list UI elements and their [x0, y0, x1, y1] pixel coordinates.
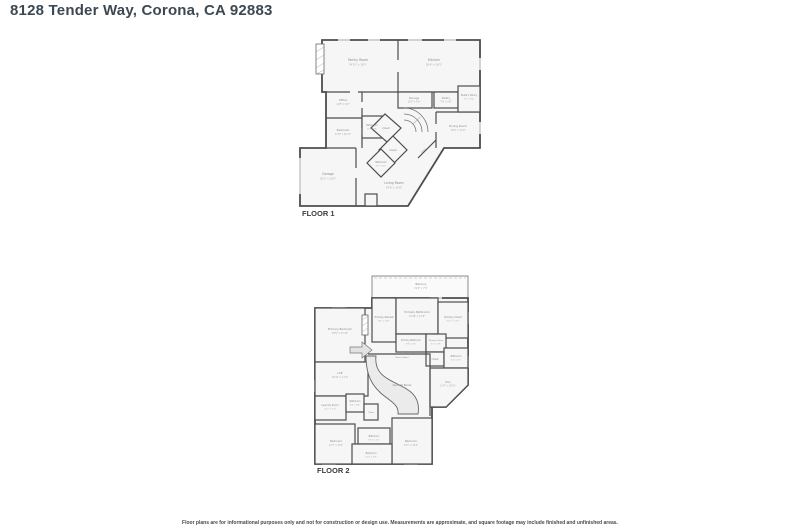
room-label: Office [339, 98, 347, 102]
room-label: Bedroom [330, 439, 342, 443]
room-label: Bathroom [366, 124, 378, 127]
room-label: Primary Bedroom [328, 327, 353, 331]
room-label: Closet [432, 358, 439, 361]
room-dims-label: 6'8" x 6'4" [350, 405, 361, 407]
floor-1-caption: FLOOR 1 [302, 209, 335, 218]
room-label: Bedroom [337, 128, 350, 132]
room-dims-label: 6'2" x 5'8" [431, 344, 441, 346]
closet-nook [365, 194, 377, 206]
room-dims-label: 9'8" x 5'4" [406, 344, 417, 346]
room-dims-label: 14'6" x 11'9" [451, 129, 466, 132]
room-label: Bedroom [366, 452, 377, 455]
floor-1-plan: Family Room 24'10" x 16'5" Kitchen 26'4"… [300, 40, 480, 218]
room-dims-label: 18'5" x 17'10" [332, 332, 348, 335]
floor-2-caption: FLOOR 2 [317, 466, 350, 475]
room-dims-label: 11'8" x 9'2" [336, 103, 350, 106]
room-label: Bathroom [350, 400, 361, 403]
room-dims-label: 7'2" x 8'4" [464, 99, 475, 101]
room-dims-label: 13'10" x 11'6" [409, 315, 425, 318]
room-label: Closet [389, 149, 396, 152]
room-dims-label: 12'3" x 9'8" [365, 457, 377, 459]
room-dims-label: 16'11" x 11'2" [332, 376, 348, 379]
room-label: Garage [322, 172, 334, 176]
floor-plans-canvas: Family Room 24'10" x 16'5" Kitchen 26'4"… [0, 0, 800, 530]
footer-disclaimer: Floor plans are for informational purpos… [0, 520, 800, 526]
room-dims-label: 9'10" x 5'2" [368, 440, 380, 442]
den-room [430, 368, 468, 407]
room-dims-label: 7'4" x 6'0" [451, 360, 462, 362]
room-label: Family Room [348, 58, 368, 62]
room-label: Primary Closet [429, 339, 444, 342]
room-label: Stairs (down) [395, 356, 409, 359]
floor-plan-page: 8128 Tender Way, Corona, CA 92883 Family… [0, 0, 800, 530]
room-dims-label: 8'0" x 13'6" [378, 321, 390, 323]
room-label: Butler's Pantry [461, 94, 478, 97]
room-label: Pantry [442, 96, 451, 100]
room-label: Dining Room [449, 124, 467, 128]
room-label: Den [445, 380, 451, 384]
room-dims-label: 31'0" x 7'4" [414, 287, 428, 290]
room-dims-label: 13'1" x 14'2" [404, 444, 418, 447]
room-dims-label: 24'6" x 15'8" [386, 186, 402, 190]
room-dims-label: 10'2" x 7'3" [324, 409, 336, 411]
room-dims-label: 26'4" x 16'5" [426, 63, 442, 67]
floor-2-plan: Balcony 31'0" x 7'4" Primary Bathroom 13… [315, 276, 468, 475]
room-label: Storage [409, 96, 420, 100]
bathroom-room [346, 394, 364, 412]
room-dims-label: 6'9" x 6'2" [376, 166, 387, 168]
room-label: Primary Retreat [375, 316, 394, 319]
room-label: Primary Closet [444, 316, 462, 319]
room-label: Living Room [384, 181, 404, 185]
room-dims-label: 11'8" x 10'11" [335, 133, 351, 136]
room-label: Bathroom [451, 355, 462, 358]
room-label: Open To Below [392, 383, 412, 387]
room-label: Loft [337, 371, 343, 375]
room-dims-label: 18'2" x 19'0" [320, 177, 336, 181]
room-dims-label: 9'11" x 11'5" [446, 321, 459, 323]
room-label: Closet [382, 127, 389, 130]
room-dims-label: 7'6" x 5'6" [440, 101, 451, 104]
room-label: Bathroom [369, 435, 380, 438]
room-label: Primary Bathroom [404, 310, 430, 314]
room-label: Closet [368, 411, 374, 414]
bathroom-room [444, 348, 468, 368]
room-label: Balcony [415, 282, 426, 286]
primary-bedroom-room [315, 308, 365, 362]
room-label: Primary Bathroom [401, 339, 421, 342]
room-label: Laundry Room [321, 404, 339, 407]
room-dims-label: 10'9" x 5'6" [408, 101, 421, 104]
room-label: Bathroom [375, 161, 387, 164]
room-dims-label: 24'10" x 16'5" [349, 63, 367, 67]
room-dims-label: 12'4" x 10'10" [440, 385, 456, 388]
room-label: Bedroom [405, 439, 417, 443]
room-dims-label: 7'5" x 6'8" [367, 129, 378, 131]
room-dims-label: 13'7" x 12'6" [329, 444, 343, 447]
room-label: Kitchen [428, 58, 440, 62]
loft-room [315, 362, 368, 396]
